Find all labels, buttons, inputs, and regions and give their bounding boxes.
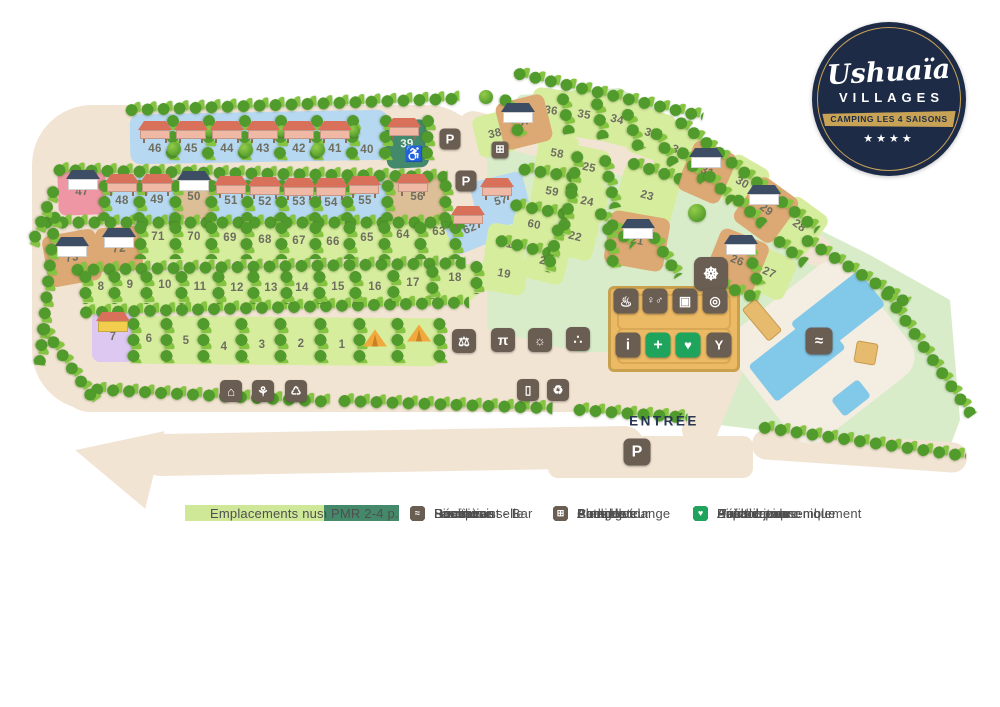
cabin-icon xyxy=(246,121,280,143)
icon-glyph: P xyxy=(462,175,471,188)
legend-icon: ≈ xyxy=(410,506,425,521)
campsite-map-page: 4645444342414039474849505152535455565762… xyxy=(0,0,1000,707)
map-plot: 12 xyxy=(230,282,243,294)
cabin-body xyxy=(398,183,428,192)
cabin-roof xyxy=(246,121,280,130)
cabin-icon xyxy=(724,235,758,255)
parking-entrance-icon: P xyxy=(624,439,651,466)
map-plot: 68 xyxy=(258,234,271,246)
map-plot: 44 xyxy=(220,143,233,155)
map-plot: 67 xyxy=(292,235,305,247)
plot-number: 43 xyxy=(256,143,269,155)
plot-number: 4 xyxy=(221,341,228,353)
tree-line xyxy=(274,317,289,363)
tree-line xyxy=(414,221,429,259)
icon-glyph: ▯ xyxy=(525,384,532,396)
icon-glyph: i xyxy=(626,338,630,353)
plot-number: 13 xyxy=(264,282,277,294)
cabin-icon xyxy=(621,219,655,239)
entrance-label: ENTRÉE xyxy=(629,414,699,429)
cabin-roof xyxy=(282,178,316,187)
icon-glyph: P xyxy=(632,444,643,460)
cabin-roof xyxy=(105,174,139,183)
cabin-icon xyxy=(138,121,172,143)
brand-stars: ★★★★ xyxy=(863,132,914,145)
plot-number: 23 xyxy=(639,188,655,203)
plot-number: 44 xyxy=(220,143,233,155)
map-plot: 71 xyxy=(151,231,164,243)
cabin-body xyxy=(284,130,314,139)
cabin-body xyxy=(691,157,721,168)
tree-line xyxy=(205,221,220,259)
plot-number: 65 xyxy=(360,232,373,244)
icon-glyph: ∴ xyxy=(574,332,583,346)
brand-banner: CAMPING LES 4 SAISONS xyxy=(822,111,955,127)
espace-calme-icon: ☸ xyxy=(694,257,728,291)
map-plot: 9 xyxy=(127,279,134,291)
tent-icon xyxy=(363,330,387,347)
defibrillateur-icon: ♥ xyxy=(676,333,701,358)
cabin-roof xyxy=(396,174,430,183)
map-plot: 1 xyxy=(339,339,346,351)
map-plot: 40 xyxy=(360,144,373,156)
tree-line xyxy=(175,270,190,304)
cabin-body xyxy=(212,130,242,139)
map-plot: 64 xyxy=(396,229,409,241)
cabin-icon xyxy=(214,176,248,198)
plot-number: 6 xyxy=(146,333,153,345)
map-plot: 11 xyxy=(194,281,207,293)
piscines-icon: ≈ xyxy=(806,328,833,355)
icon-glyph: ♨ xyxy=(620,294,633,308)
exit-arrow-icon xyxy=(66,411,165,508)
cabin-body xyxy=(107,183,137,192)
tree-line xyxy=(140,270,155,304)
plot-number: 2 xyxy=(298,338,305,350)
map-plot: 45 xyxy=(184,143,197,155)
laverie-icon: ▣ xyxy=(673,289,698,314)
plot-number: 7 xyxy=(110,331,117,343)
plot-number: 69 xyxy=(223,232,236,244)
cabin-icon xyxy=(102,228,136,248)
cabin-roof xyxy=(248,177,282,186)
cabin-roof xyxy=(96,312,130,321)
wheelchair-icon: ♿ xyxy=(404,144,424,164)
map-plot: 10 xyxy=(158,279,171,291)
tree-line xyxy=(197,317,212,363)
map-plot: 2 xyxy=(298,338,305,350)
legend-label: Défibrilateur xyxy=(717,506,790,521)
cabin-body xyxy=(453,215,483,224)
map-plot: 43 xyxy=(256,143,269,155)
cabin-roof xyxy=(177,171,211,180)
parking-icon: P xyxy=(456,171,477,192)
plot-number: 10 xyxy=(158,279,171,291)
cabin-icon xyxy=(177,171,211,191)
cabin-body xyxy=(250,186,280,195)
map-plot: 15 xyxy=(331,281,344,293)
atelier-icon: ☼ xyxy=(528,328,552,352)
plot-number: 11 xyxy=(194,281,207,293)
cabin-icon xyxy=(318,121,352,143)
cabin-body xyxy=(482,187,512,196)
plot-number: 14 xyxy=(295,282,308,294)
icon-glyph: π xyxy=(498,333,509,347)
cabin-icon xyxy=(480,178,514,200)
cabin-icon xyxy=(689,148,723,168)
plot-number: 59 xyxy=(544,185,559,199)
plot-number: 1 xyxy=(339,339,346,351)
brand-sub: VILLAGES xyxy=(839,90,944,105)
map-plot: 17 xyxy=(406,277,419,289)
plancha-icon: ⊞ xyxy=(492,142,509,159)
cabin-icon xyxy=(96,312,130,332)
plot-number: 19 xyxy=(496,267,511,281)
plot-number: 41 xyxy=(328,143,341,155)
map-plot: 46 xyxy=(148,143,161,155)
icon-glyph: ≈ xyxy=(815,334,823,349)
legend-icon: ♥ xyxy=(693,506,708,521)
poubelles-icon: ▯ xyxy=(517,379,539,401)
tree-line xyxy=(380,179,396,221)
cabin-body xyxy=(349,185,379,194)
map-plot: 18 xyxy=(448,272,461,284)
cabin-roof xyxy=(314,178,348,187)
cabin-body xyxy=(68,179,98,190)
tree-line xyxy=(343,221,358,259)
map-plot: 65 xyxy=(360,232,373,244)
cabin-icon xyxy=(451,206,485,228)
tree-line xyxy=(79,270,94,304)
plot-number: 16 xyxy=(368,281,381,293)
icon-glyph: ☸ xyxy=(703,265,719,283)
bac-a-vaisselle-icon: ◎ xyxy=(703,289,728,314)
icon-glyph: ♿ xyxy=(405,147,424,162)
cabin-roof xyxy=(451,206,485,215)
tree xyxy=(311,143,325,157)
cabin-body xyxy=(284,187,314,196)
parking-icon: P xyxy=(440,129,461,150)
cabin-icon xyxy=(396,174,430,196)
pique-nique-icon: π xyxy=(491,328,515,352)
cabin-roof xyxy=(138,121,172,130)
cabin-icon xyxy=(501,103,535,123)
cabin-roof xyxy=(210,121,244,130)
map-plot: 70 xyxy=(187,231,200,243)
douches-icon: ♨ xyxy=(614,289,639,314)
cabin-roof xyxy=(747,185,781,194)
cabin-icon xyxy=(140,174,174,196)
cabin-body xyxy=(176,130,206,139)
legend-item: Emplacements nus xyxy=(185,505,324,521)
aire-de-vidange-icon: ⌂ xyxy=(220,380,242,402)
plot-number: 12 xyxy=(230,282,243,294)
tree-line xyxy=(275,221,290,259)
cabin-roof xyxy=(55,237,89,246)
icon-glyph: P xyxy=(446,133,455,146)
icon-glyph: ☼ xyxy=(534,334,546,347)
tree-line xyxy=(212,270,227,304)
plot-number: 50 xyxy=(187,191,200,203)
tree-line xyxy=(280,270,295,304)
icon-glyph: ♥ xyxy=(684,339,692,352)
rassemblement-icon: + xyxy=(646,333,671,358)
cabin-icon xyxy=(174,121,208,143)
tree xyxy=(239,143,253,157)
plot-number: 71 xyxy=(151,231,164,243)
tree-line xyxy=(240,221,255,259)
cabin-roof xyxy=(140,174,174,183)
cabin-body xyxy=(749,194,779,205)
map-plot: 6 xyxy=(146,333,153,345)
cabin-roof xyxy=(724,235,758,244)
restaurant-bar-icon: Y xyxy=(707,333,732,358)
cabin-roof xyxy=(501,103,535,112)
plot-number: 40 xyxy=(360,144,373,156)
map-plot: 3 xyxy=(259,339,266,351)
exit-road xyxy=(140,426,646,477)
cabin-body xyxy=(104,237,134,248)
plot-number: 48 xyxy=(115,195,128,207)
icon-glyph: + xyxy=(653,337,662,353)
cabin-body xyxy=(142,183,172,192)
cabin-roof xyxy=(102,228,136,237)
plot-number: 58 xyxy=(549,147,564,161)
map-plot: 14 xyxy=(295,282,308,294)
plot-number: 66 xyxy=(326,236,339,248)
tree-line xyxy=(160,317,175,363)
cabin-body xyxy=(179,180,209,191)
plot-number: 42 xyxy=(292,143,305,155)
cabin-roof xyxy=(689,148,723,157)
icon-glyph: ⊞ xyxy=(495,145,504,156)
cabin-icon xyxy=(55,237,89,257)
cabin-icon xyxy=(210,121,244,143)
sun-deck xyxy=(853,340,878,365)
map-plot: 41 xyxy=(328,143,341,155)
tree-line xyxy=(169,221,184,259)
cabin-roof xyxy=(387,118,421,127)
tree-line xyxy=(349,270,364,304)
tent-icon xyxy=(407,325,431,342)
plot-number: 8 xyxy=(98,281,105,293)
plot-number: 67 xyxy=(292,235,305,247)
cabin-roof xyxy=(318,121,352,130)
legend-item: ≈ Piscines xyxy=(410,505,484,521)
plot-number: 17 xyxy=(406,277,419,289)
map-plot: 42 xyxy=(292,143,305,155)
boulodrome-icon: ∴ xyxy=(566,327,590,351)
icon-glyph: ▣ xyxy=(679,295,691,308)
plot-number: 60 xyxy=(526,218,542,233)
map-plot: 8 xyxy=(98,281,105,293)
legend-swatch xyxy=(185,505,201,521)
icon-glyph: ⚘ xyxy=(257,385,269,398)
cabin-icon xyxy=(747,185,781,205)
tree xyxy=(167,142,181,156)
legend-label: Plancha xyxy=(577,506,625,521)
reception-icon: i xyxy=(616,333,641,358)
cabin-roof xyxy=(347,176,381,185)
plot-number: 68 xyxy=(258,234,271,246)
cabin-roof xyxy=(66,170,100,179)
tree-line xyxy=(470,260,485,294)
tree-line xyxy=(387,269,402,303)
icon-glyph: Y xyxy=(715,339,724,352)
icon-glyph: ♻ xyxy=(553,384,564,396)
map-plot: 16 xyxy=(368,281,381,293)
tree-line xyxy=(314,317,329,363)
cabin-body xyxy=(98,321,128,332)
cabin-roof xyxy=(282,121,316,130)
cabin-icon xyxy=(105,174,139,196)
cabin-body xyxy=(726,244,756,255)
cabin-icon xyxy=(314,178,348,200)
tree-line xyxy=(313,270,328,304)
tree xyxy=(479,90,493,104)
cabin-roof xyxy=(621,219,655,228)
legend-label: Emplacements nus xyxy=(210,506,324,521)
tree-line xyxy=(235,317,250,363)
cabin-roof xyxy=(480,178,514,187)
plot-number: 45 xyxy=(184,143,197,155)
plot-number: 24 xyxy=(579,195,595,210)
cabin-body xyxy=(316,187,346,196)
icon-glyph: ◎ xyxy=(709,295,720,308)
cabin-roof xyxy=(214,176,248,185)
map-plot: 13 xyxy=(264,282,277,294)
legend-label: Piscines xyxy=(434,506,484,521)
cabin-icon xyxy=(282,121,316,143)
sanitaires-icon: ♀♂ xyxy=(643,289,668,314)
plot-number: 18 xyxy=(448,272,461,284)
map-plot: 5 xyxy=(183,335,190,347)
cabin-body xyxy=(57,246,87,257)
plot-number: 15 xyxy=(331,281,344,293)
campsite-map: 4645444342414039474849505152535455565762… xyxy=(0,0,1000,707)
icon-glyph: ⚖ xyxy=(458,335,470,348)
tree xyxy=(688,204,706,222)
cabin-body xyxy=(248,130,278,139)
potager-icon: ⚘ xyxy=(252,380,274,402)
aire-de-jeux-icon: ⚖ xyxy=(452,329,476,353)
map-plot: 4 xyxy=(221,341,228,353)
cabin-icon xyxy=(347,176,381,198)
cabin-body xyxy=(320,130,350,139)
cabin-icon xyxy=(248,177,282,199)
plot-number: 64 xyxy=(396,229,409,241)
cabin-icon xyxy=(282,178,316,200)
plot-number: 9 xyxy=(127,279,134,291)
cabin-icon xyxy=(66,170,100,190)
plot-number: 46 xyxy=(148,143,161,155)
brand-logo: Ushuaïa VILLAGES CAMPING LES 4 SAISONS ★… xyxy=(812,22,966,176)
tree-line xyxy=(433,317,448,363)
cabin-roof xyxy=(174,121,208,130)
bacs-de-tri-icon: ♻ xyxy=(547,379,569,401)
composteur-icon: ♺ xyxy=(285,380,307,402)
map-plot: 66 xyxy=(326,236,339,248)
plot-number: 35 xyxy=(576,108,591,122)
cabin-body xyxy=(140,130,170,139)
plot-number: 3 xyxy=(259,339,266,351)
legend-icon: ⊞ xyxy=(553,506,568,521)
tree-line xyxy=(108,270,123,304)
map-plot: 48 xyxy=(115,195,128,207)
icon-glyph: ⌂ xyxy=(227,385,235,398)
tree-line xyxy=(378,221,393,259)
legend-item: ♥ Défibrilateur xyxy=(693,505,790,521)
cabin-body xyxy=(503,112,533,123)
cabin-body xyxy=(389,127,419,136)
icon-glyph: ♀♂ xyxy=(647,296,664,307)
tree-line xyxy=(391,317,406,363)
cabin-icon xyxy=(387,118,421,140)
plot-number: 70 xyxy=(187,231,200,243)
tree-line xyxy=(247,270,262,304)
tree-line xyxy=(309,221,324,259)
tree-line xyxy=(426,265,441,299)
plot-number: 5 xyxy=(183,335,190,347)
icon-glyph: ♺ xyxy=(291,385,302,397)
map-plot: 69 xyxy=(223,232,236,244)
brand-name: Ushuaïa xyxy=(827,54,952,91)
cabin-body xyxy=(623,228,653,239)
legend-item: ⊞ Plancha xyxy=(553,505,625,521)
cabin-body xyxy=(216,185,246,194)
